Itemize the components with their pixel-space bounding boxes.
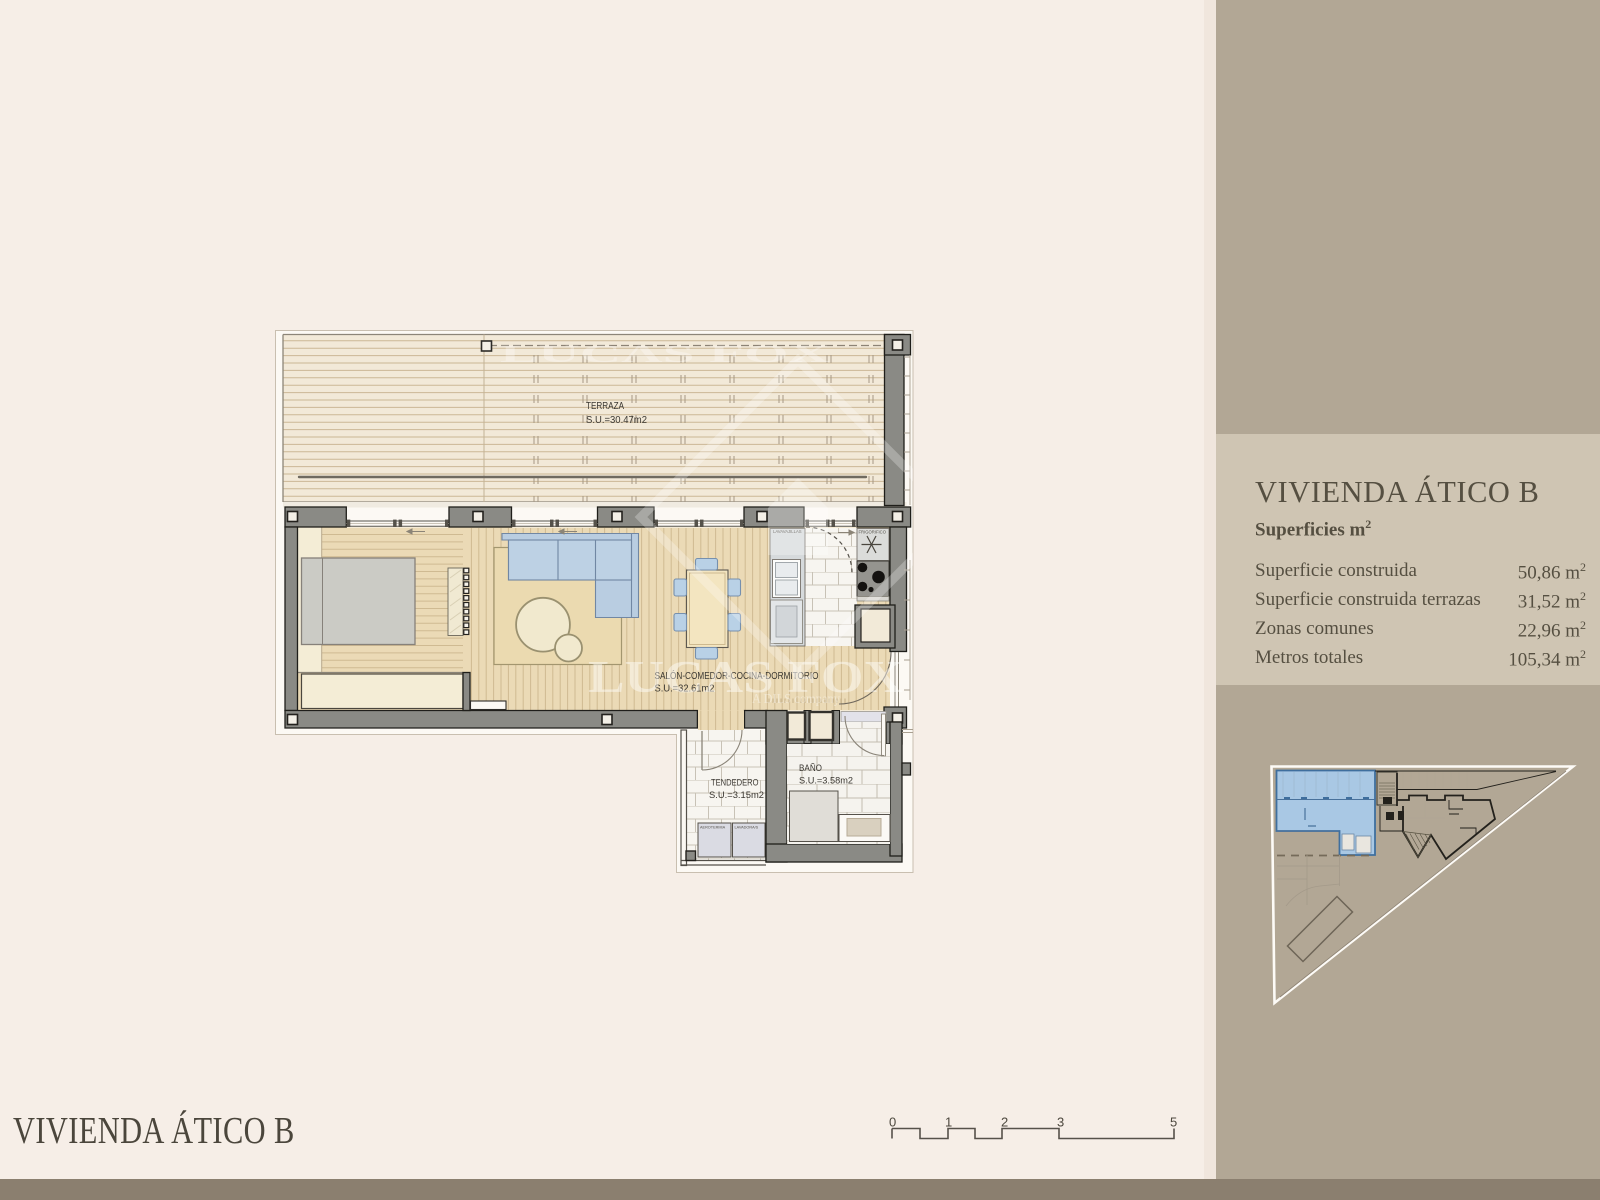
svg-text:1: 1 xyxy=(945,1115,952,1130)
svg-text:S.U.=30.47m2: S.U.=30.47m2 xyxy=(586,415,647,426)
svg-text:2: 2 xyxy=(1001,1115,1008,1130)
svg-text:3: 3 xyxy=(1057,1115,1064,1130)
svg-text:LUCAS FOX: LUCAS FOX xyxy=(500,341,830,368)
svg-text:LUCAS FOX: LUCAS FOX xyxy=(588,651,903,702)
svg-text:TERRAZA: TERRAZA xyxy=(586,401,624,412)
svg-text:5: 5 xyxy=(1170,1115,1177,1130)
svg-text:BAÑO: BAÑO xyxy=(799,763,822,774)
svg-text:TENDEDERO: TENDEDERO xyxy=(711,778,759,789)
svg-text:FRIGORIFICO: FRIGORIFICO xyxy=(859,530,887,535)
svg-text:AEROTERMIA: AEROTERMIA xyxy=(700,826,726,830)
svg-text:0: 0 xyxy=(889,1115,896,1130)
svg-text:S.U.=3.58m2: S.U.=3.58m2 xyxy=(799,776,853,787)
svg-text:S.U.=3.15m2: S.U.=3.15m2 xyxy=(709,790,764,801)
svg-text:A DILS company: A DILS company xyxy=(752,692,840,707)
svg-text:LAVADORA/S: LAVADORA/S xyxy=(735,826,759,830)
